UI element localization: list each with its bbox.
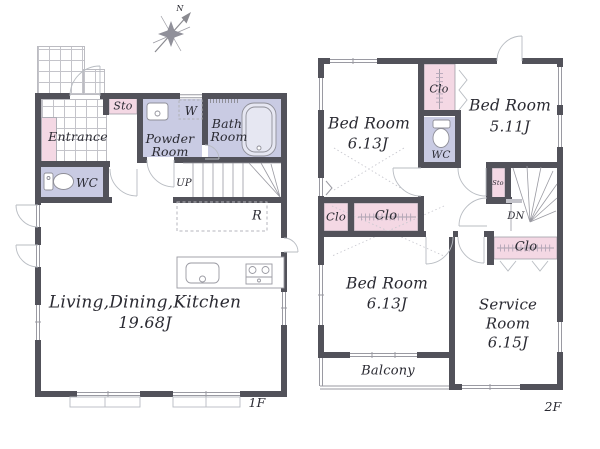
floorplan-drawing <box>0 0 600 449</box>
room-label-balcony: Balcony <box>361 365 415 378</box>
room-label-wc-2f: WC <box>431 150 450 161</box>
kitchen-counter <box>177 257 284 288</box>
room-label-ldk: Living,Dining,Kitchen <box>49 295 241 312</box>
floor2-label: 2F <box>544 401 561 414</box>
room-label-powder-2: Room <box>151 146 188 159</box>
label-fridge: R <box>252 210 262 223</box>
room-label-bedroom-nw-area: 6.13J <box>348 137 388 152</box>
stairs-up <box>183 163 281 197</box>
room-label-bedroom-nw: Bed Room <box>328 116 410 132</box>
room-label-service-area: 6.15J <box>488 336 528 351</box>
room-label-sto-1f: Sto <box>113 101 132 112</box>
room-label-bedroom-s-area: 6.13J <box>367 297 407 312</box>
room-label-bedroom-ne: Bed Room <box>469 98 551 114</box>
room-label-washer: W <box>185 105 198 117</box>
room-label-closet-n: Clo <box>429 84 448 95</box>
compass-north-label: N <box>176 5 183 13</box>
room-label-closet-hall-large: Clo <box>375 210 398 223</box>
toilet-1f-icon <box>44 173 74 190</box>
room-label-bath-2: Room <box>210 131 247 144</box>
label-stairs-up: UP <box>176 179 192 189</box>
compass-icon <box>153 12 191 52</box>
toilet-2f-icon <box>433 120 450 148</box>
room-label-sto-2f: Sto <box>492 180 504 187</box>
room-label-service-1: Service <box>479 298 537 313</box>
room-label-entrance: Entrance <box>48 131 108 144</box>
room-label-bedroom-ne-area: 5.11J <box>490 120 530 135</box>
room-label-closet-e: Clo <box>515 241 538 254</box>
floorplan-canvas: N Sto Entrance WC Powder Room W Bath Roo… <box>0 0 600 449</box>
label-stairs-down: DN <box>507 212 524 222</box>
room-label-ldk-area: 19.68J <box>118 315 171 331</box>
room-label-bedroom-s: Bed Room <box>346 276 428 292</box>
washbasin-icon <box>147 103 168 120</box>
floor1-label: 1F <box>248 397 265 410</box>
room-label-wc-1f: WC <box>76 177 98 189</box>
exterior-steps <box>70 397 240 407</box>
room-label-closet-hall-small: Clo <box>326 211 346 223</box>
room-label-service-2: Room <box>486 317 530 332</box>
